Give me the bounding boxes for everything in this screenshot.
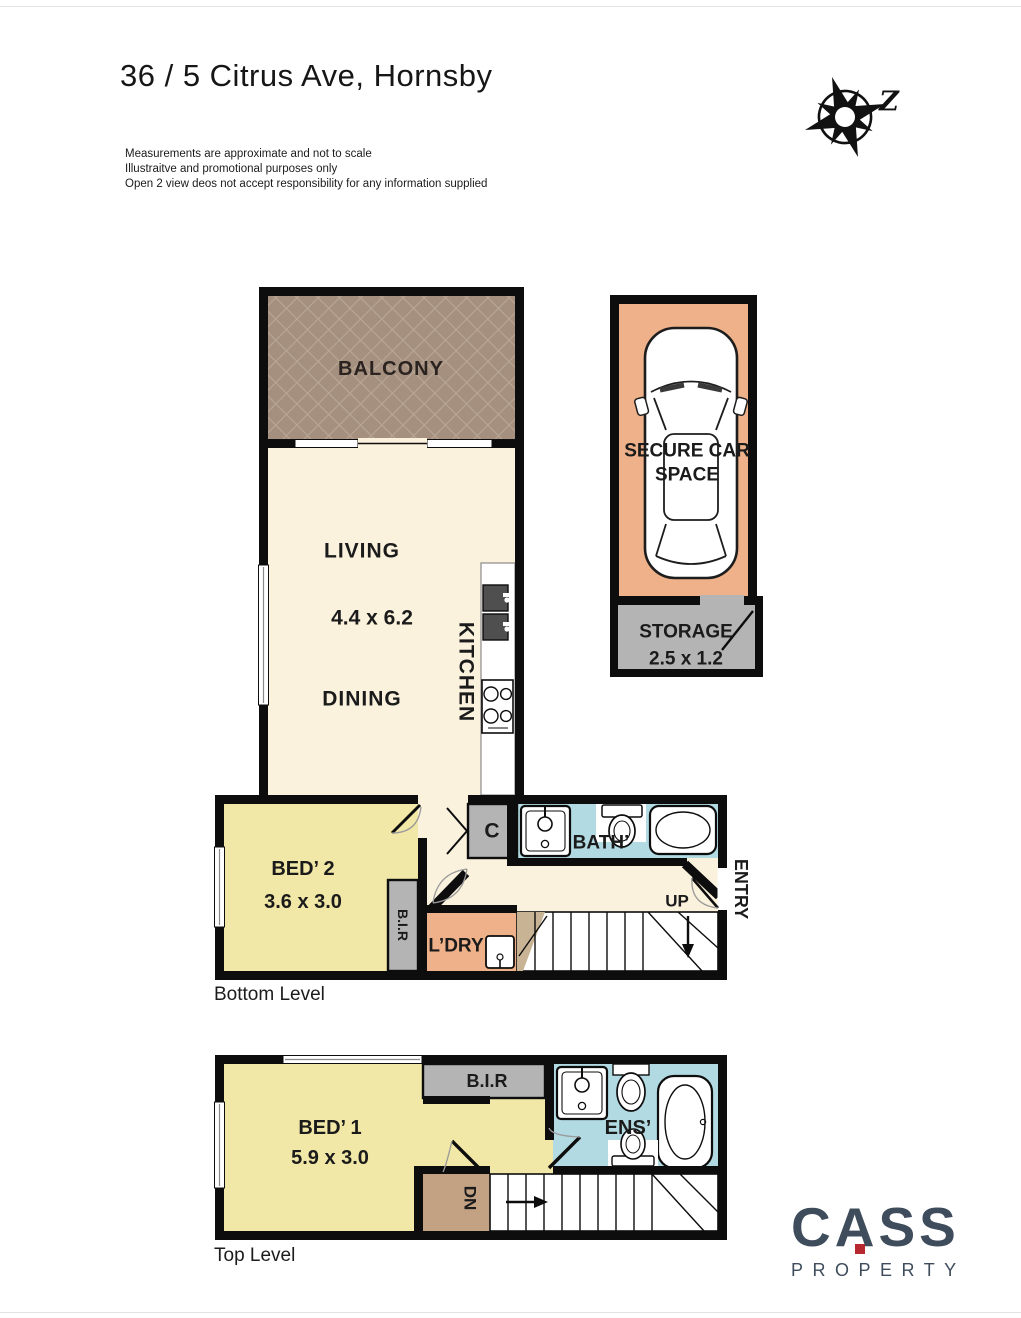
compass-north-letter: Z <box>879 87 899 118</box>
stairs-down <box>490 1174 718 1231</box>
storage-label: STORAGE <box>639 623 733 642</box>
bed1-label: BED’ 1 <box>298 1118 361 1138</box>
disclaimer-line: Open 2 view deos not accept responsibili… <box>125 177 487 192</box>
kitchen-label: KITCHEN <box>456 622 477 722</box>
cupboard-label: C <box>484 821 499 842</box>
logo-subtitle: PROPERTY <box>791 1260 991 1281</box>
floorplan-page: 36 / 5 Citrus Ave, Hornsby Measurements … <box>0 0 1021 1318</box>
floorplan-graphics <box>0 0 1021 1318</box>
storage-dimensions: 2.5 x 1.2 <box>649 650 723 669</box>
dn-label: DN <box>462 1186 479 1211</box>
bir-label-top: B.I.R <box>466 1072 507 1090</box>
laundry-label: L’DRY <box>428 937 483 956</box>
bath-sink-icon <box>521 806 570 856</box>
ensuite-bathtub-icon <box>658 1076 712 1168</box>
up-label: UP <box>665 893 689 910</box>
cooktop-icon <box>482 680 513 733</box>
disclaimer: Measurements are approximate and not to … <box>125 147 487 193</box>
laundry-tub-icon <box>486 936 514 968</box>
living-dimensions: 4.4 x 6.2 <box>331 608 413 629</box>
ensuite-sink-icon <box>557 1067 607 1119</box>
disclaimer-line: Measurements are approximate and not to … <box>125 147 487 162</box>
cass-property-logo: CASS PROPERTY <box>791 1200 991 1281</box>
page-title: 36 / 5 Citrus Ave, Hornsby <box>120 58 493 94</box>
logo-wordmark: CASS <box>791 1200 991 1255</box>
bed2-dimensions: 3.6 x 3.0 <box>264 892 342 912</box>
dining-label: DINING <box>322 689 402 710</box>
bir-label-bottom: B.I.R <box>396 909 410 941</box>
disclaimer-line: Illustraitve and promotional purposes on… <box>125 162 487 177</box>
bottom-level-caption: Bottom Level <box>214 984 325 1006</box>
bed1-dimensions: 5.9 x 3.0 <box>291 1148 369 1168</box>
kitchen-counter <box>481 563 515 795</box>
bath-label: BATH’ <box>573 834 630 853</box>
carspace-label: SECURE CAR SPACE <box>612 439 762 487</box>
bathtub-icon <box>650 806 716 854</box>
dn-landing <box>423 1174 490 1231</box>
living-label: LIVING <box>324 541 400 562</box>
logo-red-square-icon <box>855 1244 865 1254</box>
ensuite-label: ENS’ <box>605 1118 652 1138</box>
bed2-label: BED’ 2 <box>271 859 334 879</box>
entry-label: ENTRY <box>732 859 750 919</box>
top-level-caption: Top Level <box>214 1245 295 1267</box>
stairs-up <box>517 912 718 971</box>
balcony-label: BALCONY <box>338 359 444 379</box>
